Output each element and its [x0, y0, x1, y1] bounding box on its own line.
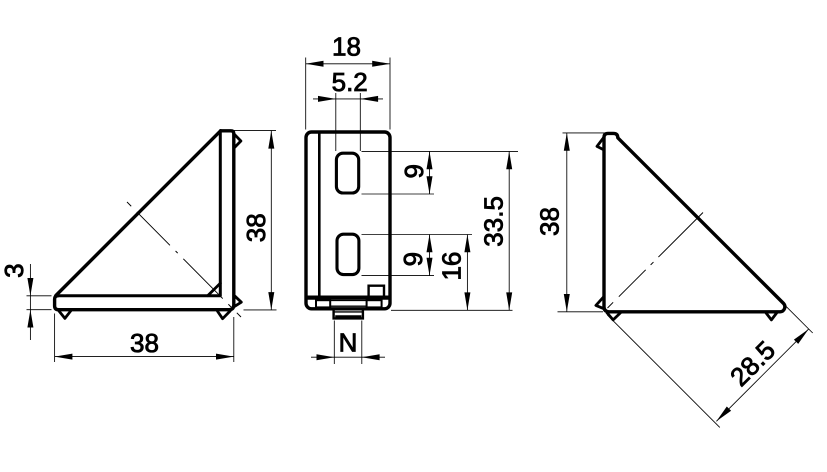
svg-text:38: 38	[130, 328, 159, 358]
svg-text:38: 38	[535, 207, 565, 236]
svg-text:3: 3	[0, 263, 29, 277]
svg-text:N: N	[339, 328, 358, 358]
svg-text:38: 38	[241, 213, 271, 242]
svg-text:18: 18	[332, 32, 361, 62]
svg-text:33.5: 33.5	[479, 196, 509, 247]
svg-text:16: 16	[437, 252, 467, 281]
svg-text:9: 9	[399, 164, 429, 178]
svg-text:9: 9	[398, 252, 428, 266]
svg-text:5.2: 5.2	[332, 67, 368, 97]
